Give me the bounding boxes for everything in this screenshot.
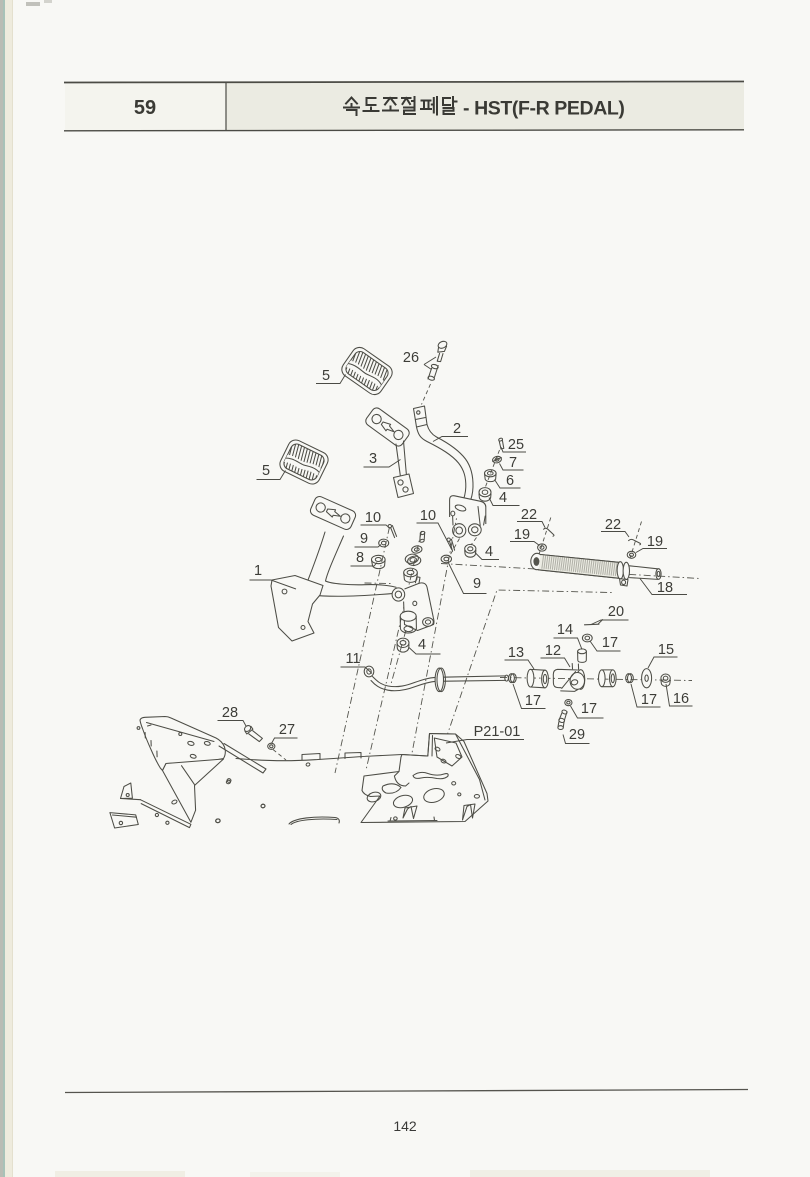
svg-text:6: 6 <box>506 473 514 489</box>
svg-text:20: 20 <box>608 604 624 620</box>
svg-text:P21-01: P21-01 <box>474 724 521 740</box>
svg-text:10: 10 <box>365 510 381 526</box>
svg-text:25: 25 <box>508 437 524 453</box>
svg-text:4: 4 <box>418 637 426 653</box>
svg-text:17: 17 <box>641 692 657 708</box>
svg-text:22: 22 <box>605 517 621 533</box>
svg-text:5: 5 <box>262 463 270 479</box>
svg-text:4: 4 <box>485 544 493 560</box>
svg-text:16: 16 <box>673 691 689 707</box>
svg-text:142: 142 <box>393 1118 417 1134</box>
svg-text:26: 26 <box>403 350 419 366</box>
svg-text:1: 1 <box>254 563 262 579</box>
svg-text:19: 19 <box>514 527 530 543</box>
svg-text:14: 14 <box>557 622 573 638</box>
svg-text:8: 8 <box>356 550 364 566</box>
svg-text:4: 4 <box>499 490 507 506</box>
svg-text:2: 2 <box>453 421 461 437</box>
svg-text:15: 15 <box>658 642 674 658</box>
svg-text:9: 9 <box>360 531 368 547</box>
svg-text:11: 11 <box>345 651 360 667</box>
svg-text:13: 13 <box>508 645 524 661</box>
svg-text:9: 9 <box>473 576 481 592</box>
svg-text:29: 29 <box>569 727 585 743</box>
svg-text:12: 12 <box>545 643 561 659</box>
svg-text:28: 28 <box>222 705 238 721</box>
svg-text:3: 3 <box>369 451 377 467</box>
svg-text:59: 59 <box>134 97 156 119</box>
svg-text:- HST(F-R PEDAL): - HST(F-R PEDAL) <box>463 98 625 120</box>
svg-text:19: 19 <box>647 534 663 550</box>
svg-text:17: 17 <box>602 635 618 651</box>
svg-text:17: 17 <box>525 693 541 709</box>
svg-text:17: 17 <box>581 701 597 717</box>
svg-text:18: 18 <box>657 580 673 596</box>
svg-text:5: 5 <box>322 368 330 384</box>
svg-text:22: 22 <box>521 507 537 523</box>
svg-text:7: 7 <box>509 455 517 471</box>
svg-text:10: 10 <box>420 508 436 524</box>
svg-text:27: 27 <box>279 722 295 738</box>
